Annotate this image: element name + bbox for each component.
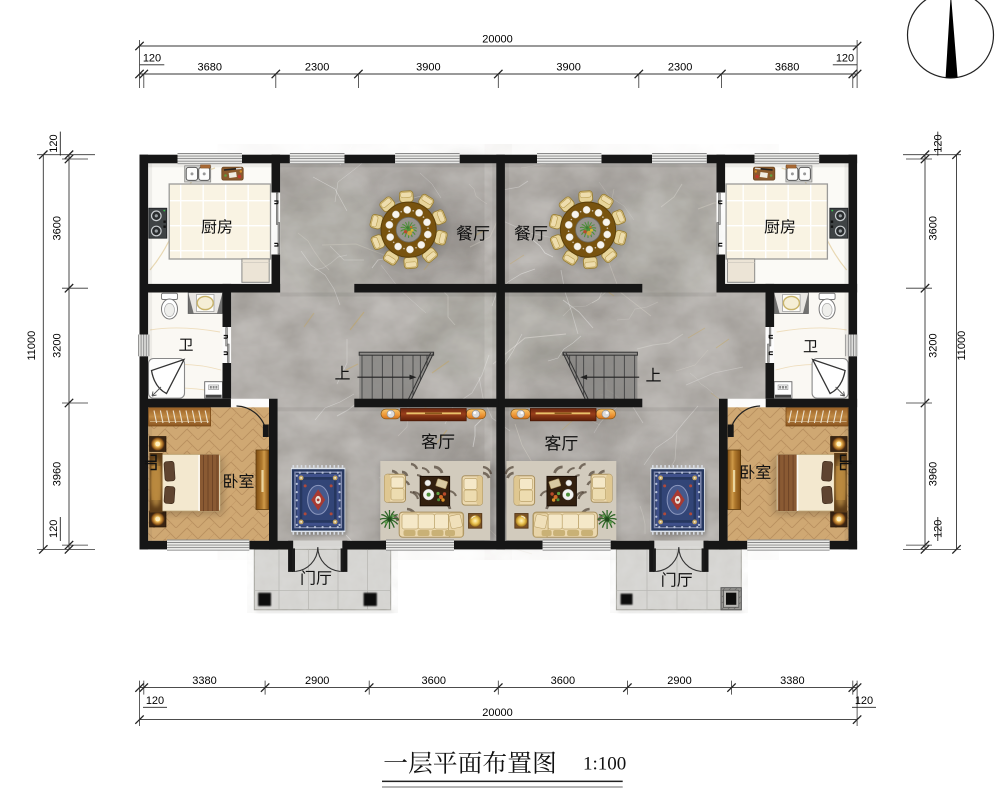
svg-text:11000: 11000 [26,331,38,361]
svg-text:3200: 3200 [927,333,939,357]
svg-text:20000: 20000 [482,34,513,46]
svg-text:120: 120 [933,520,945,538]
svg-text:3600: 3600 [422,675,446,687]
svg-text:120: 120 [48,520,60,538]
svg-text:2300: 2300 [305,62,329,74]
svg-text:120: 120 [48,134,60,152]
svg-text:2300: 2300 [668,62,692,74]
svg-text:3960: 3960 [51,462,63,486]
svg-text:3600: 3600 [51,216,63,240]
svg-text:3600: 3600 [927,216,939,240]
svg-text:3380: 3380 [192,675,216,687]
svg-text:120: 120 [143,53,161,65]
svg-text:120: 120 [146,695,164,707]
svg-text:120: 120 [836,53,854,65]
svg-text:3200: 3200 [51,333,63,357]
svg-text:20000: 20000 [482,707,513,719]
svg-text:3680: 3680 [198,62,222,74]
svg-text:3680: 3680 [775,62,799,74]
svg-text:3600: 3600 [551,675,575,687]
svg-text:2900: 2900 [667,675,691,687]
svg-text:1:100: 1:100 [583,754,626,775]
svg-text:120: 120 [933,134,945,152]
svg-text:11000: 11000 [956,331,968,361]
svg-text:120: 120 [855,695,873,707]
svg-text:3900: 3900 [416,62,440,74]
svg-text:3380: 3380 [780,675,804,687]
svg-text:3900: 3900 [556,62,580,74]
svg-text:3960: 3960 [927,462,939,486]
svg-text:2900: 2900 [305,675,329,687]
